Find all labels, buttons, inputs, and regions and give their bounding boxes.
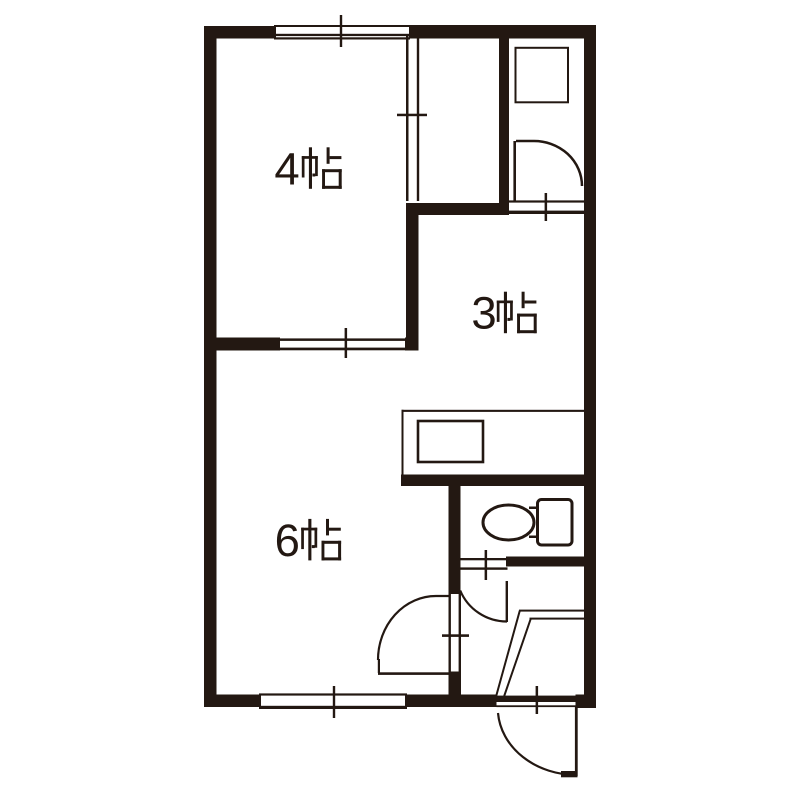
svg-text:6: 6: [275, 515, 300, 566]
svg-text:3: 3: [471, 288, 496, 339]
svg-text:4: 4: [274, 143, 299, 194]
